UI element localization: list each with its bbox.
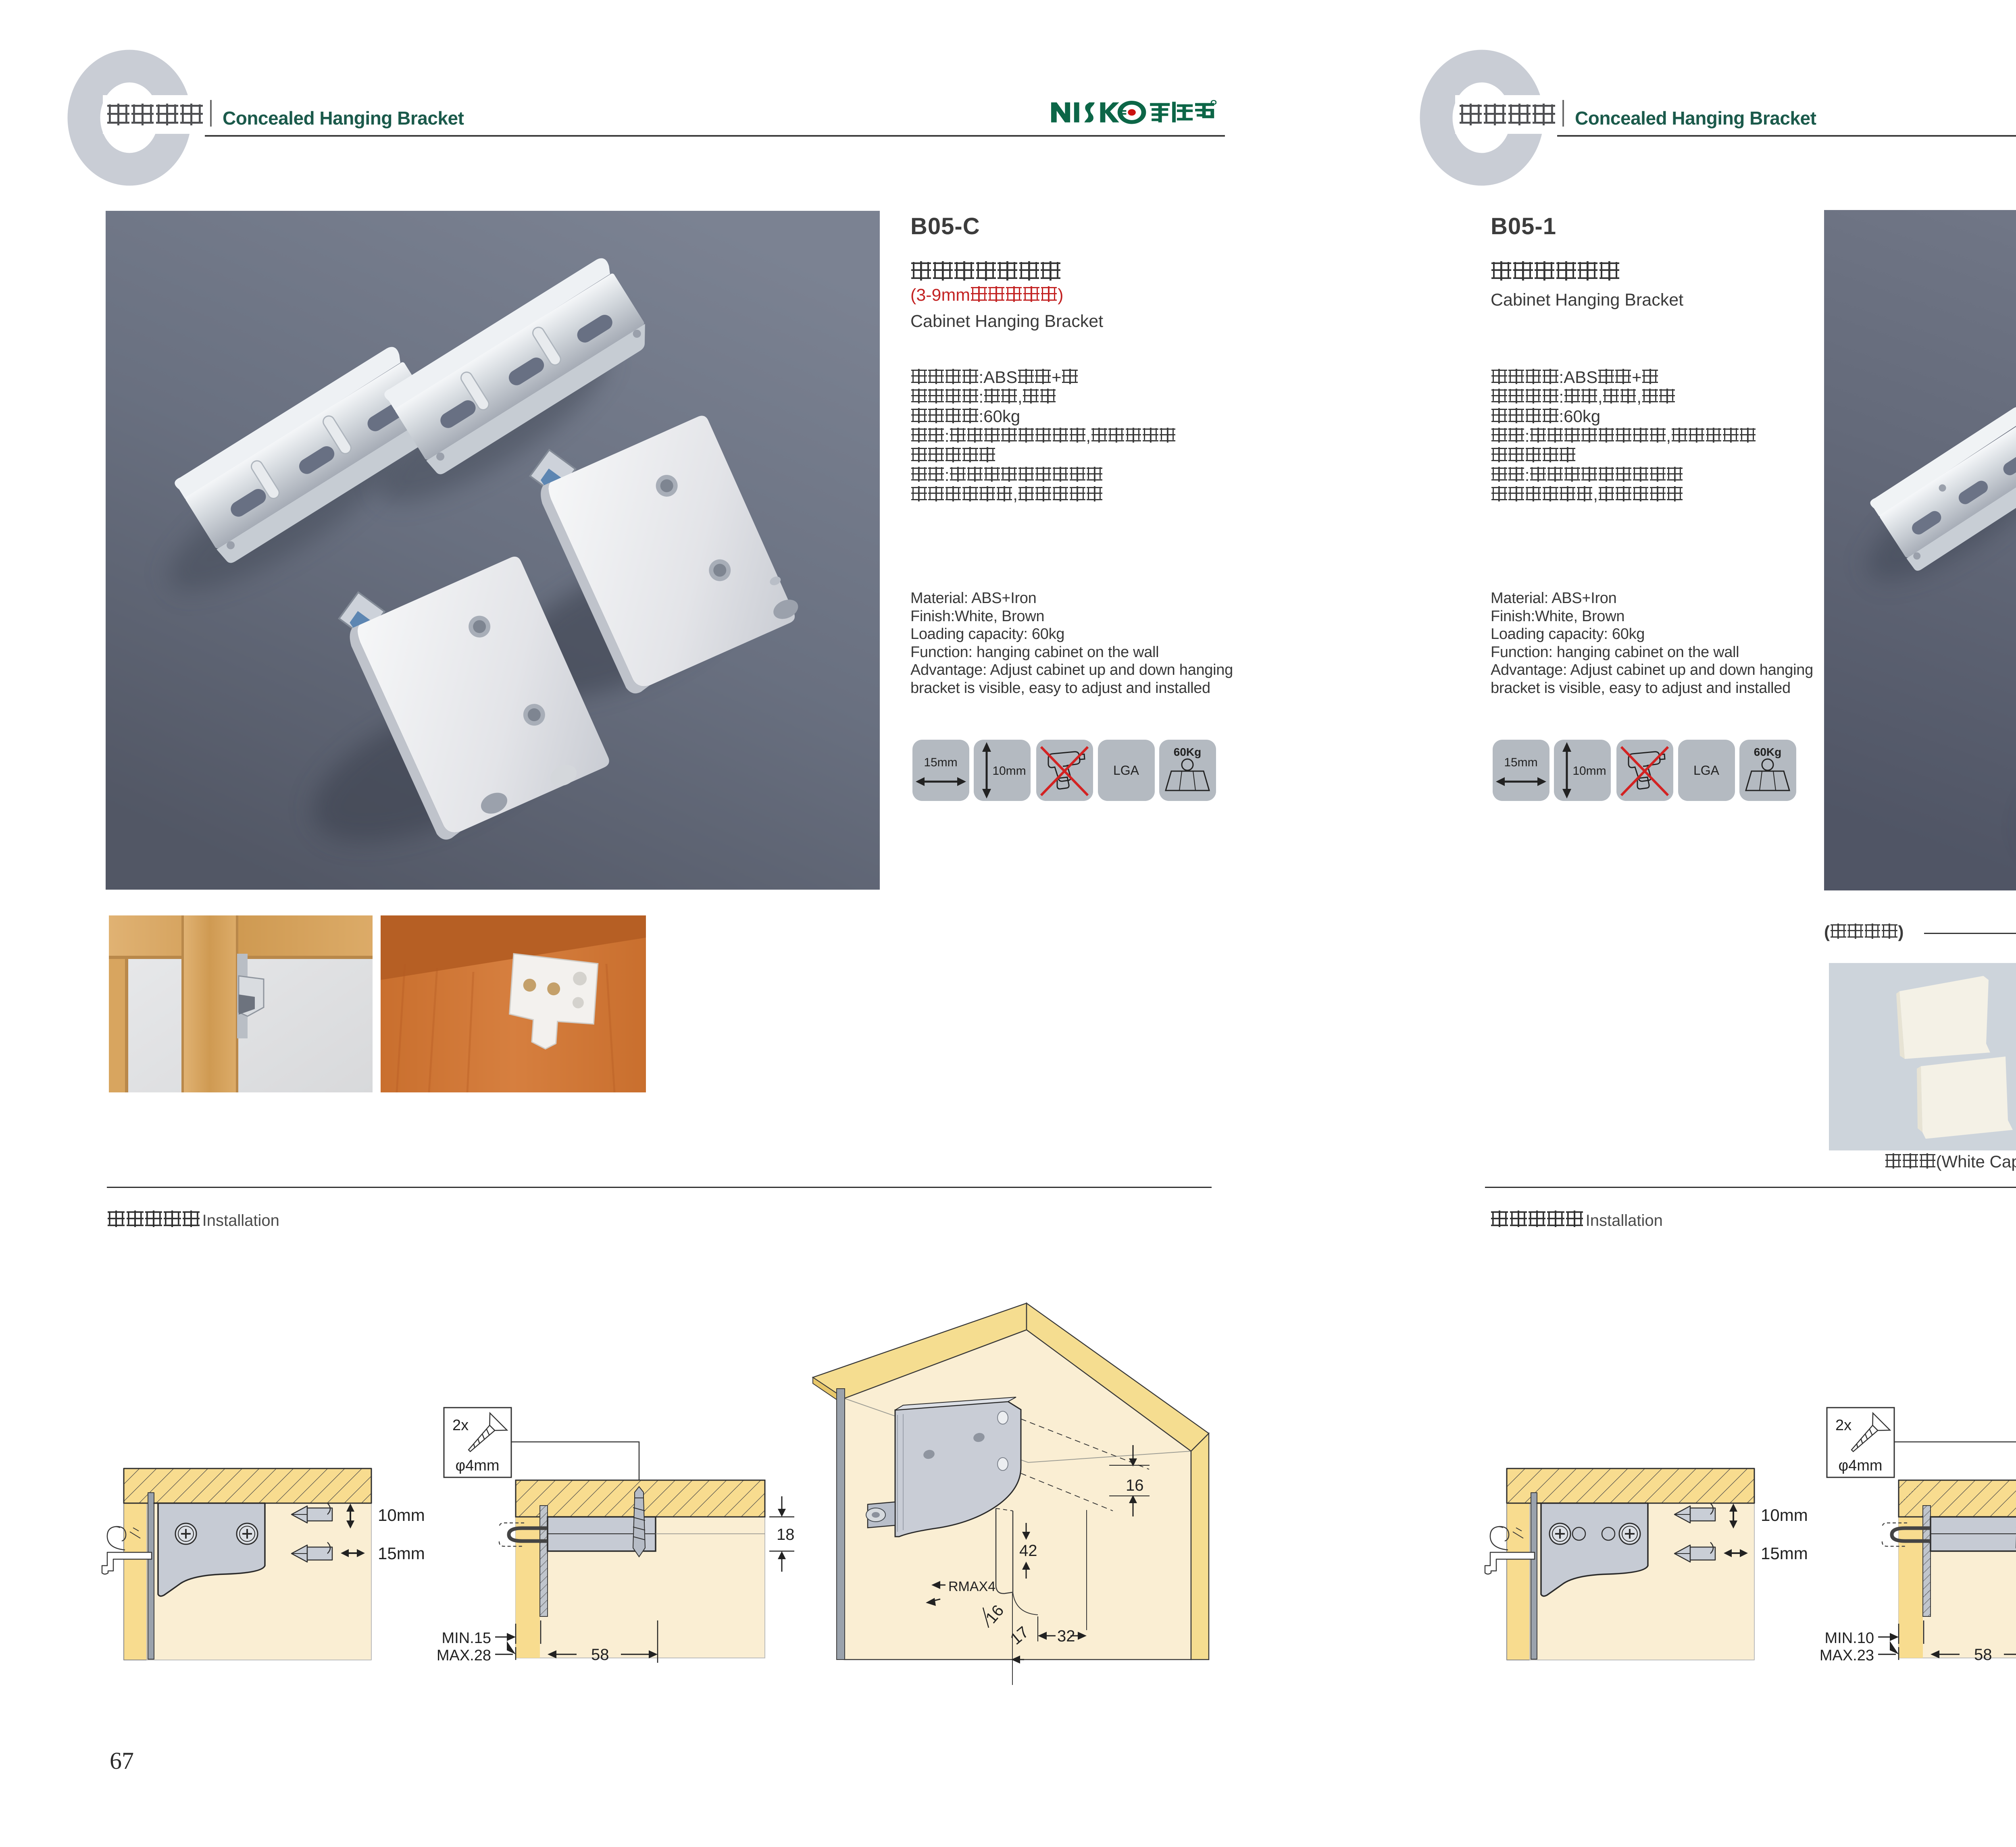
svg-text:42: 42: [1019, 1542, 1037, 1560]
svg-text:15mm: 15mm: [1504, 756, 1537, 769]
svg-text:2x: 2x: [452, 1417, 469, 1434]
svg-text:MAX.28: MAX.28: [437, 1647, 491, 1664]
svg-text:10mm: 10mm: [1572, 764, 1606, 778]
svg-text:MIN.10: MIN.10: [1825, 1630, 1874, 1647]
svg-text:10mm: 10mm: [992, 764, 1026, 778]
svg-text:LGA: LGA: [1693, 763, 1720, 778]
svg-text:16: 16: [1126, 1477, 1144, 1494]
svg-text:60Kg: 60Kg: [1174, 746, 1201, 758]
svg-text:MAX.23: MAX.23: [1820, 1647, 1874, 1664]
svg-text:2x: 2x: [1835, 1417, 1851, 1434]
svg-text:15mm: 15mm: [924, 756, 957, 769]
svg-text:58: 58: [1974, 1646, 1992, 1664]
svg-text:φ4mm: φ4mm: [1838, 1457, 1882, 1474]
svg-text:60Kg: 60Kg: [1754, 746, 1781, 758]
svg-text:15mm: 15mm: [378, 1544, 425, 1563]
svg-text:RMAX4: RMAX4: [948, 1579, 996, 1594]
svg-text:18: 18: [777, 1526, 795, 1543]
svg-text:10mm: 10mm: [1761, 1506, 1808, 1525]
svg-text:58: 58: [591, 1646, 609, 1664]
svg-text:10mm: 10mm: [378, 1506, 425, 1525]
svg-text:LGA: LGA: [1113, 763, 1139, 778]
svg-text:MIN.15: MIN.15: [442, 1630, 491, 1647]
svg-text:φ4mm: φ4mm: [455, 1457, 499, 1474]
svg-text:15mm: 15mm: [1761, 1544, 1808, 1563]
